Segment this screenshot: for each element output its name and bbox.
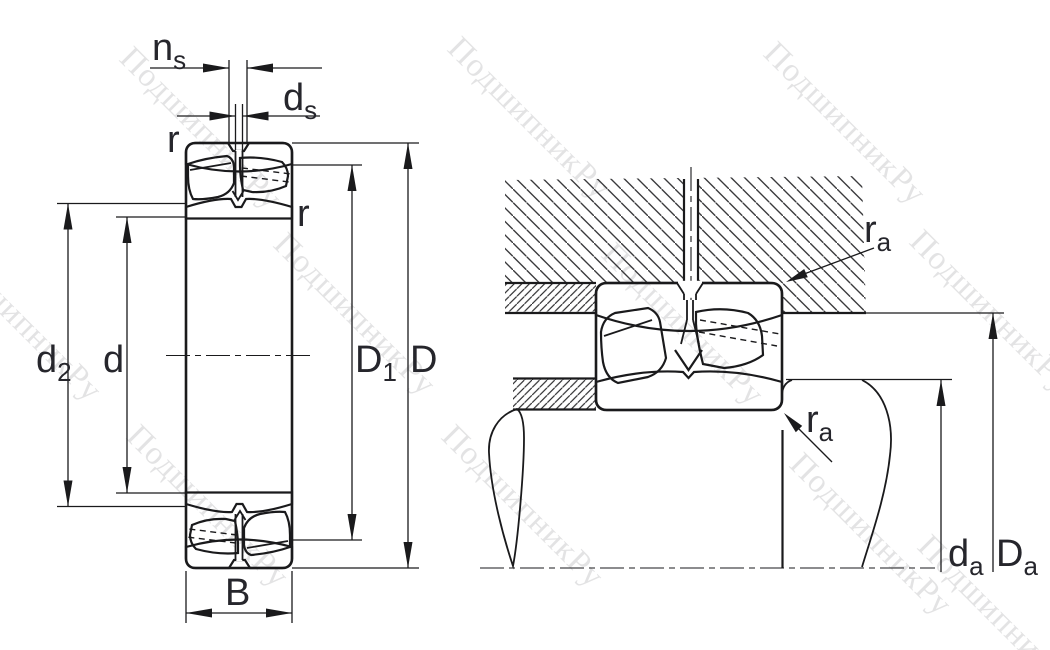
housing-abutment-section [505,283,596,313]
label-r-outer: r [167,119,180,161]
label-D: D [410,339,437,381]
watermark-layer: ПодшипникРу ПодшипникРу ПодшипникРу Подш… [0,30,1050,650]
technical-drawing: ПодшипникРу ПодшипникРу ПодшипникРу Подш… [0,0,1050,650]
inner-ring-section [186,199,292,219]
watermark-text: ПодшипникРу [0,232,109,409]
mounting-arrangement-view: ra ra da Da [480,167,1038,581]
label-ra-housing: ra [864,209,892,257]
label-d: d [103,339,124,381]
label-ns: ns [152,27,186,75]
label-ds: ds [283,77,317,125]
label-Da: Da [996,533,1038,581]
shaft-abutment-section [513,379,596,410]
label-B: B [225,572,250,614]
watermark-text: ПодшипникРу [902,223,1050,400]
shaft-fillet [782,380,792,394]
label-da: da [948,533,984,581]
label-ra-shaft: ra [806,399,834,447]
bearing-technical-drawing-page: ПодшипникРу ПодшипникРу ПодшипникРу Подш… [0,0,1050,650]
label-r-inner: r [297,193,310,235]
